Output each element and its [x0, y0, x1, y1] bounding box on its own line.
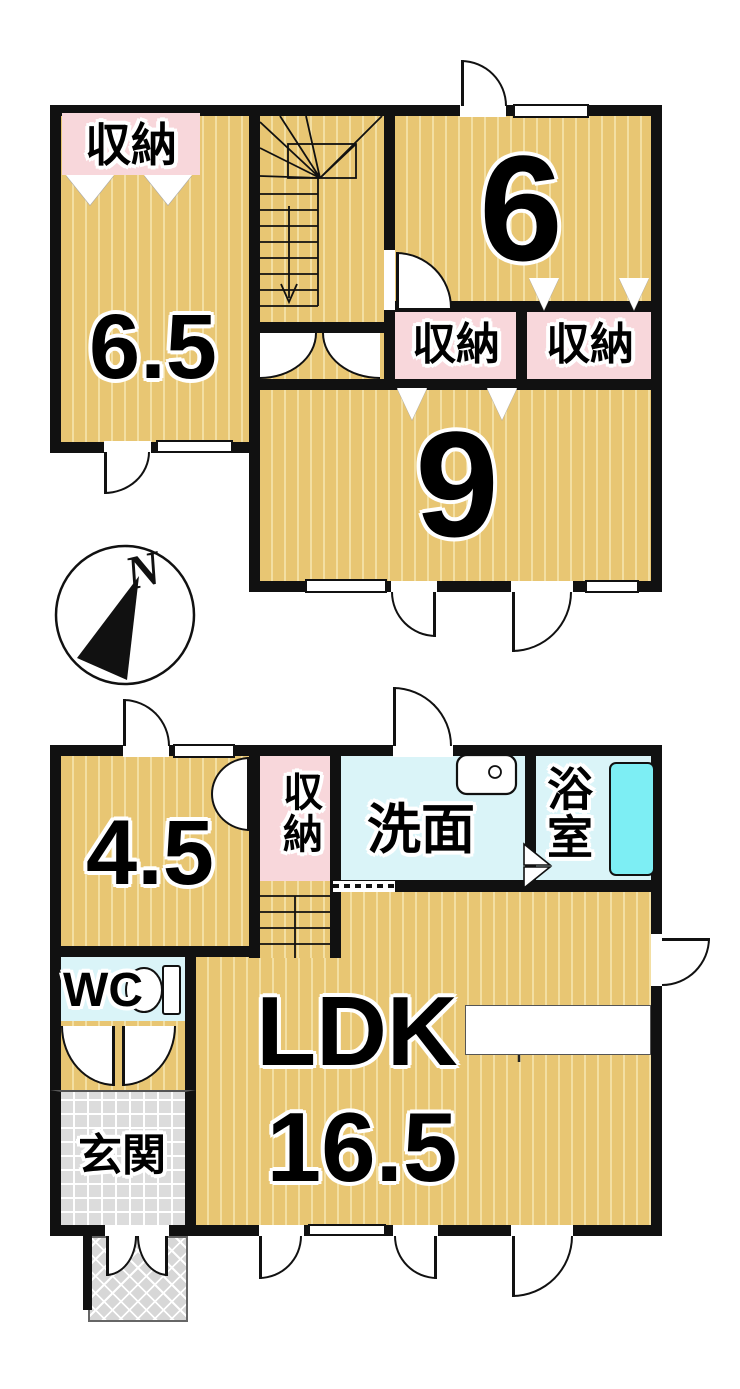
- closet-door-mark: [144, 175, 192, 205]
- entrance-label: 玄関: [78, 1134, 166, 1178]
- stairs-1f-treads: [260, 892, 330, 958]
- door-arc: [259, 1236, 302, 1279]
- window: [156, 440, 233, 453]
- window: [308, 1224, 386, 1236]
- closet-6-5-label: 収納: [85, 122, 177, 168]
- washroom-label: 洗面: [367, 803, 475, 857]
- door-gap: [393, 745, 453, 757]
- door-arc: [394, 1236, 437, 1279]
- ldk-label: LDK: [256, 982, 457, 1080]
- sink-icon: [455, 753, 519, 797]
- door-arc: [123, 699, 170, 746]
- kitchen-counter: [465, 1005, 651, 1055]
- door-gap: [393, 1225, 438, 1236]
- stairs-2f-treads: [260, 116, 384, 322]
- room-9-area-label: 9: [415, 409, 498, 559]
- door-arc: [512, 592, 572, 652]
- room-6-5-area-label: 6.5: [89, 301, 217, 393]
- bathtub-icon: [609, 762, 655, 876]
- closet-door-mark: [66, 175, 114, 205]
- room-4-5-area-label: 4.5: [86, 807, 214, 899]
- sliding-door: [333, 884, 395, 888]
- door-arc: [662, 938, 710, 986]
- door-gap: [123, 745, 169, 757]
- closet-door-mark: [619, 278, 649, 310]
- closet-b-label: 収納: [546, 323, 634, 367]
- ldk-area-label: 16.5: [267, 1098, 458, 1196]
- door-gap: [651, 934, 662, 986]
- door-arc: [104, 452, 150, 494]
- door-gap: [384, 250, 395, 310]
- door-arc: [461, 60, 507, 106]
- door-gap: [391, 581, 437, 592]
- door-gap: [460, 105, 506, 117]
- window: [305, 579, 387, 593]
- door-arc: [393, 687, 452, 746]
- door-arc: [391, 592, 436, 637]
- window: [173, 744, 235, 758]
- door-gap: [259, 1225, 304, 1236]
- closet-1f-label: 収納: [279, 771, 319, 855]
- door-gap: [511, 1225, 573, 1236]
- door-gap: [105, 1225, 169, 1236]
- bathroom-label: 浴室: [544, 765, 590, 861]
- wc-label: WC: [63, 967, 143, 1015]
- closet-a-label: 収納: [412, 323, 500, 367]
- window: [585, 580, 639, 593]
- floor-plan: N: [0, 0, 740, 1389]
- door-arc: [512, 1236, 573, 1297]
- compass-icon: N: [52, 538, 198, 688]
- window: [513, 104, 589, 118]
- door-gap: [511, 581, 573, 592]
- room-6-area-label: 6: [479, 133, 562, 283]
- wall-stub: [83, 1236, 92, 1310]
